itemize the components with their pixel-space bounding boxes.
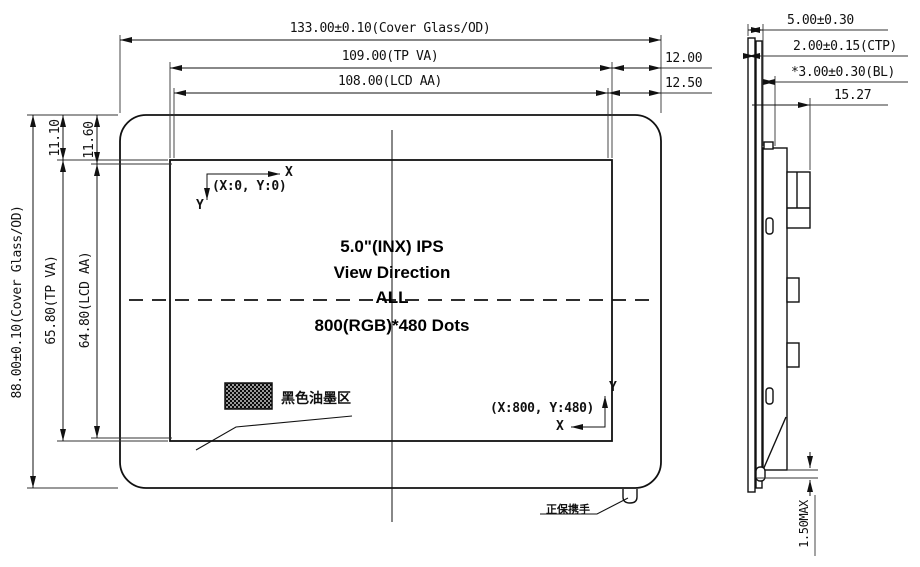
dim-tp-width-label: 109.00(TP VA) — [240, 49, 540, 65]
dim-bl-thickness-label: *3.00±0.30(BL) — [791, 65, 895, 81]
dim-lcd-height-label: 64.80(LCD AA) — [78, 252, 94, 349]
film-pull-tab — [623, 489, 637, 503]
dim-top-offset-tp-label: 11.10 — [48, 119, 64, 156]
dim-ctp-thickness-label: 2.00±0.15(CTP) — [793, 39, 897, 55]
module-top-lip — [764, 142, 773, 149]
ink-area-swatch — [225, 383, 272, 409]
dim-top-offset-lcd-label: 11.60 — [82, 121, 98, 158]
dim-lcd-width-label: 108.00(LCD AA) — [240, 74, 540, 90]
dim-bottom-gap-label: 1.50MAX — [796, 500, 812, 548]
resolution-text: 800(RGB)*480 Dots — [242, 316, 542, 336]
ink-area-label: 黑色油墨区 — [281, 388, 351, 408]
dim-right-offset-tp-label: 12.00 — [665, 51, 702, 67]
dim-total-thickness-label: 5.00±0.30 — [787, 13, 854, 29]
dim-cover-width-label: 133.00±0.10(Cover Glass/OD) — [215, 21, 565, 37]
rear-boss-2 — [787, 343, 799, 367]
connector-block — [787, 172, 810, 228]
dim-connector-depth-label: 15.27 — [834, 88, 871, 104]
dim-cover-height-label: 88.00±0.10(Cover Glass/OD) — [10, 205, 26, 398]
frame-slot-2 — [766, 388, 773, 404]
bottom-foot — [756, 467, 765, 481]
view-direction-text: View Direction — [242, 263, 542, 283]
endpoint-y-axis-label: Y — [609, 380, 616, 396]
drawing-canvas: .obj{stroke:#111;stroke-width:1.8;fill:#… — [0, 0, 920, 567]
panel-size-text: 5.0"(INX) IPS — [242, 237, 542, 257]
dim-tp-height-label: 65.80(TP VA) — [44, 255, 60, 344]
endpoint-x-axis-label: X — [556, 419, 563, 435]
side-view — [748, 24, 908, 556]
cover-glass-side — [748, 38, 755, 492]
ctp-layer-side — [756, 41, 762, 488]
origin-y-axis-label: Y — [196, 198, 203, 214]
rear-boss-1 — [787, 278, 799, 302]
view-direction-all-text: ALL — [242, 288, 542, 308]
origin-coordinate-label: (X:0, Y:0) — [212, 179, 286, 195]
dim-right-offset-lcd-label: 12.50 — [665, 76, 702, 92]
pull-tab-label: 正保携手 — [546, 501, 590, 517]
frame-slot-1 — [766, 218, 773, 234]
endpoint-coordinate-label: (X:800, Y:480) — [478, 401, 594, 417]
